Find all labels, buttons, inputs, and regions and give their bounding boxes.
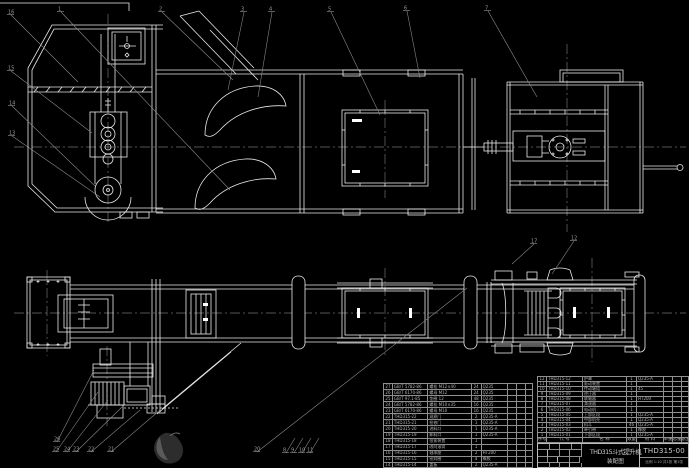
bom-cell (517, 384, 526, 389)
bom-cell: 48 (472, 396, 482, 401)
bom-cell: HT200 (482, 451, 509, 456)
bom-cell: THD315-05 (547, 413, 583, 417)
bom-cell: 3 (538, 423, 547, 427)
bom-cell: 19 (384, 433, 393, 438)
bom-cell (673, 423, 682, 427)
bom-row: 25GB/T 97.1-85垫圈 1248Q235 (383, 395, 533, 401)
bom-cell (673, 418, 682, 422)
bom-cell: 螺栓 M10×35 (428, 402, 471, 407)
bom-cell (664, 418, 673, 422)
bom-cell: Q235 (482, 402, 509, 407)
bom-header-cell: 单重 (664, 438, 673, 442)
bom-cell: 电动机 (583, 407, 627, 411)
callout-number: 6 (404, 6, 407, 12)
bom-cell (673, 387, 682, 391)
bom-cell: Q235-A (637, 418, 664, 422)
callout-number: 1 (58, 7, 61, 13)
bom-cell (682, 402, 689, 406)
signature-cell (560, 463, 570, 468)
boot-plan (27, 277, 113, 348)
bom-header-cell: 备注 (682, 438, 689, 442)
bom-cell: THD315-10 (547, 387, 583, 391)
bom-header-cell: 名 称 (583, 438, 627, 442)
bom-cell: GB/T 5782-86 (393, 384, 428, 389)
bom-cell: THD315-02 (547, 428, 583, 432)
bom-cell: THD315-22 (393, 414, 428, 419)
bom-cell: 垫圈 12 (428, 396, 471, 401)
bom-header-cell: 代 号 (547, 438, 583, 442)
bom-cell: 25 (384, 396, 393, 401)
view-side-elevation (28, 11, 683, 220)
callout-leader (512, 244, 534, 264)
bom-cell: THD315-03 (547, 423, 583, 427)
bom-row: 3THD315-03料斗46Q235-A (537, 422, 689, 427)
bom-row: 11THD315-11驱动装置1 (537, 381, 689, 386)
bom-row: 26GB/T 6170-86螺母 M1224Q235 (383, 389, 533, 395)
callout-number: 4 (269, 7, 272, 13)
callout-number: 7 (485, 6, 488, 12)
callout-leader (488, 11, 537, 97)
bom-row: 4THD315-04中部机壳1Q235-A (537, 417, 689, 422)
bom-cell (526, 402, 533, 407)
bom-cell: 逆止器 (583, 392, 627, 396)
product-title: THD315斗式提升机 (590, 447, 641, 456)
callout-leader (331, 12, 380, 115)
bom-cell (508, 457, 517, 462)
bom-cell (517, 457, 526, 462)
bom-cell (664, 392, 673, 396)
bom-cell: Q235-A (637, 423, 664, 427)
bom-cell: 密封圈 (428, 457, 471, 462)
bom-cell: 1 (627, 402, 637, 406)
callout-leader (91, 410, 140, 452)
head-section (507, 70, 643, 213)
bom-row: 7THD315-07减速器1 (537, 401, 689, 406)
boot-section (28, 25, 163, 218)
bom-row: 27GB/T 5782-86螺栓 M12×4024Q235 (383, 383, 533, 389)
bom-cell: GB/T 5782-86 (393, 402, 428, 407)
bom-row: 15THD315-15密封圈4橡胶 (383, 456, 533, 462)
bom-cell (517, 402, 526, 407)
bom-row: 1THD315-01下部区段1Q235-A (537, 432, 689, 437)
bom-cell: 橡胶 (482, 457, 509, 462)
callout-number: 5 (328, 7, 331, 13)
bom-cell (637, 402, 664, 406)
bom-cell: 4 (472, 457, 482, 462)
bom-cell (664, 402, 673, 406)
bom-cell (508, 414, 517, 419)
bom-cell (682, 418, 689, 422)
bom-header-cell: 序号 (538, 438, 547, 442)
bom-cell: 1 (472, 426, 482, 431)
bom-cell: THD315-20 (393, 426, 428, 431)
title-block: THD315斗式提升机 装配图 THD315-00 比例 1:10 共1张 第1… (537, 443, 689, 468)
bom-cell (682, 407, 689, 411)
bom-cell: 1 (472, 433, 482, 438)
callout-number: 21 (108, 447, 114, 453)
bom-cell: Q235-A (482, 433, 509, 438)
bom-cell (517, 426, 526, 431)
bom-cell (664, 428, 673, 432)
callout-number: 15 (8, 66, 14, 72)
bom-cell: 9 (538, 392, 547, 396)
bom-cell: THD315-17 (393, 445, 428, 450)
drawing-number: THD315-00 (640, 444, 688, 458)
bom-cell: 进料口 (428, 426, 471, 431)
bom-cell: 2 (472, 414, 482, 419)
bom-cell: 17 (384, 445, 393, 450)
bom-cell (508, 408, 517, 413)
bom-cell: 1 (472, 420, 482, 425)
bom-cell: 1 (627, 407, 637, 411)
bom-cell (508, 420, 517, 425)
bom-cell: 16 (472, 408, 482, 413)
bom-header-cell: 材 料 (637, 438, 664, 442)
buckets (195, 86, 286, 209)
bom-cell (517, 439, 526, 444)
bom-cell (673, 402, 682, 406)
bom-cell: 1 (627, 392, 637, 396)
callout-number: 16 (8, 10, 14, 16)
bom-cell: HT200 (637, 397, 664, 401)
backstop-handle (643, 165, 683, 171)
bom-cell: THD315-14 (393, 463, 428, 467)
bom-cell (508, 439, 517, 444)
bom-cell: 盖板 (428, 463, 471, 467)
bom-cell: 传动轴组 (583, 387, 627, 391)
callout-leader (552, 241, 574, 274)
bom-cell: 26 (384, 390, 393, 395)
bom-row: 8THD315-08联轴器1HT200 (537, 396, 689, 401)
bom-row: 14THD315-14盖板2Q235-A (383, 462, 533, 468)
bom-cell (682, 397, 689, 401)
sheet-info: 比例 1:10 共1张 第1张 (640, 458, 688, 467)
callout-leader (258, 12, 272, 97)
signature-cell (570, 463, 582, 468)
bom-cell: 下部区段 (583, 433, 627, 437)
bom-cell: Q235-A (482, 414, 509, 419)
bom-cell: 2 (472, 451, 482, 456)
bom-cell (526, 396, 533, 401)
callout-number: 25 (53, 447, 59, 453)
bom-cell (673, 397, 682, 401)
callout-number: 20 (254, 447, 260, 453)
bom-cell: 1 (627, 428, 637, 432)
bom-cell (664, 382, 673, 386)
bom-cell: 7 (538, 402, 547, 406)
bom-cell (673, 392, 682, 396)
bom-cell (682, 377, 689, 381)
bom-cell: 12 (538, 377, 547, 381)
callout-leader (61, 12, 230, 190)
callout-number: 22 (88, 447, 94, 453)
bom-cell (517, 451, 526, 456)
parts-list-right: 12THD315-12护罩1Q235-A 11THD315-11驱动装置1 10… (537, 376, 689, 443)
bom-cell: 张紧装置 (428, 439, 471, 444)
bom-cell: THD315-11 (547, 382, 583, 386)
bom-cell: Q235 (482, 384, 509, 389)
bom-cell: THD315-06 (547, 407, 583, 411)
bom-cell (508, 390, 517, 395)
callout-number: 10 (299, 448, 305, 454)
bom-cell (526, 426, 533, 431)
bom-cell: 1 (472, 439, 482, 444)
bom-cell (673, 382, 682, 386)
bom-cell (664, 407, 673, 411)
bom-row: 10THD315-10传动轴组145 (537, 386, 689, 391)
inlet-panel-plan (186, 290, 216, 338)
bom-cell: 观察门 (428, 414, 471, 419)
bom-cell (673, 407, 682, 411)
bom-cell (664, 397, 673, 401)
bom-cell (673, 413, 682, 417)
bom-cell: 2 (538, 428, 547, 432)
bom-row: 22THD315-22观察门2Q235-A (383, 413, 533, 419)
bom-cell: 20 (384, 426, 393, 431)
head-plan (487, 268, 639, 355)
discharge-chute (157, 343, 241, 414)
bom-cell: Q235-A (637, 377, 664, 381)
callout-leader (11, 71, 92, 133)
bom-cell (526, 408, 533, 413)
callout-number: 8 (283, 448, 286, 454)
bom-cell (526, 439, 533, 444)
bom-cell (682, 428, 689, 432)
callout-number: 12 (571, 236, 577, 242)
bom-header-cell: 总重 (673, 438, 682, 442)
bom-cell (517, 433, 526, 438)
bom-cell: 2 (472, 463, 482, 467)
bom-cell: 减速器 (583, 402, 627, 406)
bom-cell: 料斗 (583, 423, 627, 427)
bom-cell: 11 (538, 382, 547, 386)
bom-cell (482, 445, 509, 450)
bom-cell: 24 (472, 390, 482, 395)
bom-cell: 护罩 (583, 377, 627, 381)
sheet-name: 装配图 (607, 457, 624, 465)
bom-cell (664, 433, 673, 437)
take-up-device (90, 34, 127, 184)
bom-cell: 1 (627, 413, 637, 417)
bom-cell: THD315-18 (393, 439, 428, 444)
parts-list-left: 27GB/T 5782-86螺栓 M12×4024Q235 26GB/T 617… (383, 383, 533, 468)
bom-cell: THD315-15 (393, 457, 428, 462)
bom-cell (517, 420, 526, 425)
bom-cell: 16 (384, 451, 393, 456)
bom-cell: 1 (627, 397, 637, 401)
callout-leader (56, 392, 98, 452)
bom-cell: THD315-12 (547, 377, 583, 381)
bom-cell (526, 414, 533, 419)
sheet-frame-corner (0, 3, 129, 11)
bom-cell: Q235-A (482, 463, 509, 467)
callout-number: 14 (9, 101, 15, 107)
bom-cell (664, 377, 673, 381)
title-cell: THD315斗式提升机 装配图 (591, 444, 640, 467)
bom-cell: GB/T 6170-86 (393, 408, 428, 413)
bom-cell: 27 (384, 384, 393, 389)
bom-cell: 24 (384, 402, 393, 407)
bom-cell (664, 413, 673, 417)
bom-cell (526, 457, 533, 462)
bom-cell (508, 426, 517, 431)
bom-row: 12THD315-12护罩1Q235-A (537, 376, 689, 381)
bom-cell: 24 (472, 384, 482, 389)
bom-cell (673, 428, 682, 432)
bom-cell (682, 382, 689, 386)
stamp-blob (154, 433, 183, 464)
bom-row: 21THD315-21检修门1Q235-A (383, 419, 533, 425)
bom-cell (508, 402, 517, 407)
bom-cell: 驱动装置 (583, 382, 627, 386)
callout-number: 11 (307, 448, 313, 454)
drive-unit-plan (463, 131, 605, 161)
bom-row: 9THD315-09逆止器1 (537, 391, 689, 396)
signature-cell (550, 463, 560, 468)
bom-cell: Q235-A (637, 413, 664, 417)
bom-cell: 改向滚筒 (428, 445, 471, 450)
bom-cell: 21 (384, 420, 393, 425)
bom-cell: THD315-21 (393, 420, 428, 425)
bom-cell: THD315-09 (547, 392, 583, 396)
callout-number: 17 (531, 239, 537, 245)
casing-plan (70, 285, 635, 342)
bom-cell: 上部区段 (583, 413, 627, 417)
bom-cell: 16 (472, 402, 482, 407)
bom-cell (526, 433, 533, 438)
bom-cell: THD315-19 (393, 433, 428, 438)
callout-leader (12, 136, 100, 197)
bom-cell: Q235-A (482, 426, 509, 431)
bom-cell (508, 433, 517, 438)
bom-cell: 1 (627, 418, 637, 422)
bom-cell: Q235 (482, 396, 509, 401)
bom-cell (637, 407, 664, 411)
bom-cell (637, 392, 664, 396)
bom-cell: 1 (472, 445, 482, 450)
bom-row: 6THD315-06电动机1 (537, 406, 689, 411)
bom-cell (517, 390, 526, 395)
callout-number: 3 (241, 7, 244, 13)
bom-row: 18THD315-18张紧装置1 (383, 438, 533, 444)
bom-cell: 联轴器 (583, 397, 627, 401)
bom-cell (682, 392, 689, 396)
bom-cell (517, 445, 526, 450)
bom-cell: 15 (384, 457, 393, 462)
bom-cell: 46 (627, 423, 637, 427)
callout-number: 26 (54, 437, 60, 443)
bom-cell: 轴承座 (428, 451, 471, 456)
callout-number: 13 (9, 131, 15, 137)
bom-cell (517, 408, 526, 413)
boot-inspection-panel (108, 28, 145, 64)
bom-cell: THD315-07 (547, 402, 583, 406)
bom-cell (526, 420, 533, 425)
bom-cell: GB/T 97.1-85 (393, 396, 428, 401)
callout-leader (67, 400, 108, 452)
bom-cell: 14 (384, 463, 393, 467)
bom-cell (664, 423, 673, 427)
bom-cell (508, 384, 517, 389)
callout-number: 23 (73, 447, 79, 453)
bom-cell: 10 (538, 387, 547, 391)
bom-cell: 卸料口 (428, 433, 471, 438)
signature-grid (538, 444, 591, 467)
bom-cell: THD315-08 (547, 397, 583, 401)
bom-cell: 检修门 (428, 420, 471, 425)
callout-leader (12, 106, 95, 186)
bom-cell: 23 (384, 408, 393, 413)
bom-cell (664, 387, 673, 391)
bom-cell: 4 (538, 418, 547, 422)
bom-cell (673, 377, 682, 381)
bom-cell (526, 384, 533, 389)
bom-cell: Q235 (482, 408, 509, 413)
bom-row: 20THD315-20进料口1Q235-A (383, 425, 533, 431)
bom-row: 23GB/T 6170-86螺母 M1016Q235 (383, 407, 533, 413)
bom-cell: 牵引带 (583, 428, 627, 432)
bom-cell: GB/T 6170-86 (393, 390, 428, 395)
bom-cell: THD315-01 (547, 433, 583, 437)
callout-leader (111, 410, 160, 452)
bom-cell: Q235-A (482, 420, 509, 425)
bom-cell (517, 463, 526, 467)
bom-cell (637, 382, 664, 386)
bom-cell (682, 423, 689, 427)
bom-cell (482, 439, 509, 444)
bom-cell: 18 (384, 439, 393, 444)
bom-cell: 螺母 M12 (428, 390, 471, 395)
bom-cell: 5 (538, 413, 547, 417)
callout-number: 24 (64, 447, 70, 453)
bom-cell (517, 414, 526, 419)
bom-cell (508, 396, 517, 401)
bom-cell (508, 445, 517, 450)
bom-header-cell: 数量 (627, 438, 637, 442)
bom-cell (682, 413, 689, 417)
drawing-number-cell: THD315-00 比例 1:10 共1张 第1张 (640, 444, 688, 467)
bom-cell (682, 433, 689, 437)
bom-cell: Q235-A (637, 433, 664, 437)
bom-row: 17THD315-17改向滚筒1 (383, 444, 533, 450)
bom-cell: 8 (538, 397, 547, 401)
bom-cell: Q235 (482, 390, 509, 395)
bom-cell: 22 (384, 414, 393, 419)
bom-cell: 1 (627, 433, 637, 437)
bom-cell (526, 390, 533, 395)
bom-cell (526, 445, 533, 450)
bom-cell: THD315-04 (547, 418, 583, 422)
signature-cell (538, 463, 550, 468)
bom-cell (682, 387, 689, 391)
callout-number: 2 (159, 7, 162, 13)
bom-cell (526, 463, 533, 467)
bom-cell (508, 463, 517, 467)
bom-cell: 45 (637, 387, 664, 391)
bom-cell (517, 396, 526, 401)
bom-cell: THD315-16 (393, 451, 428, 456)
bom-cell: 1 (627, 377, 637, 381)
bom-cell: 1 (538, 433, 547, 437)
callout-number: 9 (291, 448, 294, 454)
bom-cell: 螺栓 M12×40 (428, 384, 471, 389)
bom-cell: 1 (627, 387, 637, 391)
bom-cell: 橡胶 (637, 428, 664, 432)
bom-cell: 1 (627, 382, 637, 386)
bom-cell: 螺母 M10 (428, 408, 471, 413)
bom-cell: 6 (538, 407, 547, 411)
bom-cell: 中部机壳 (583, 418, 627, 422)
